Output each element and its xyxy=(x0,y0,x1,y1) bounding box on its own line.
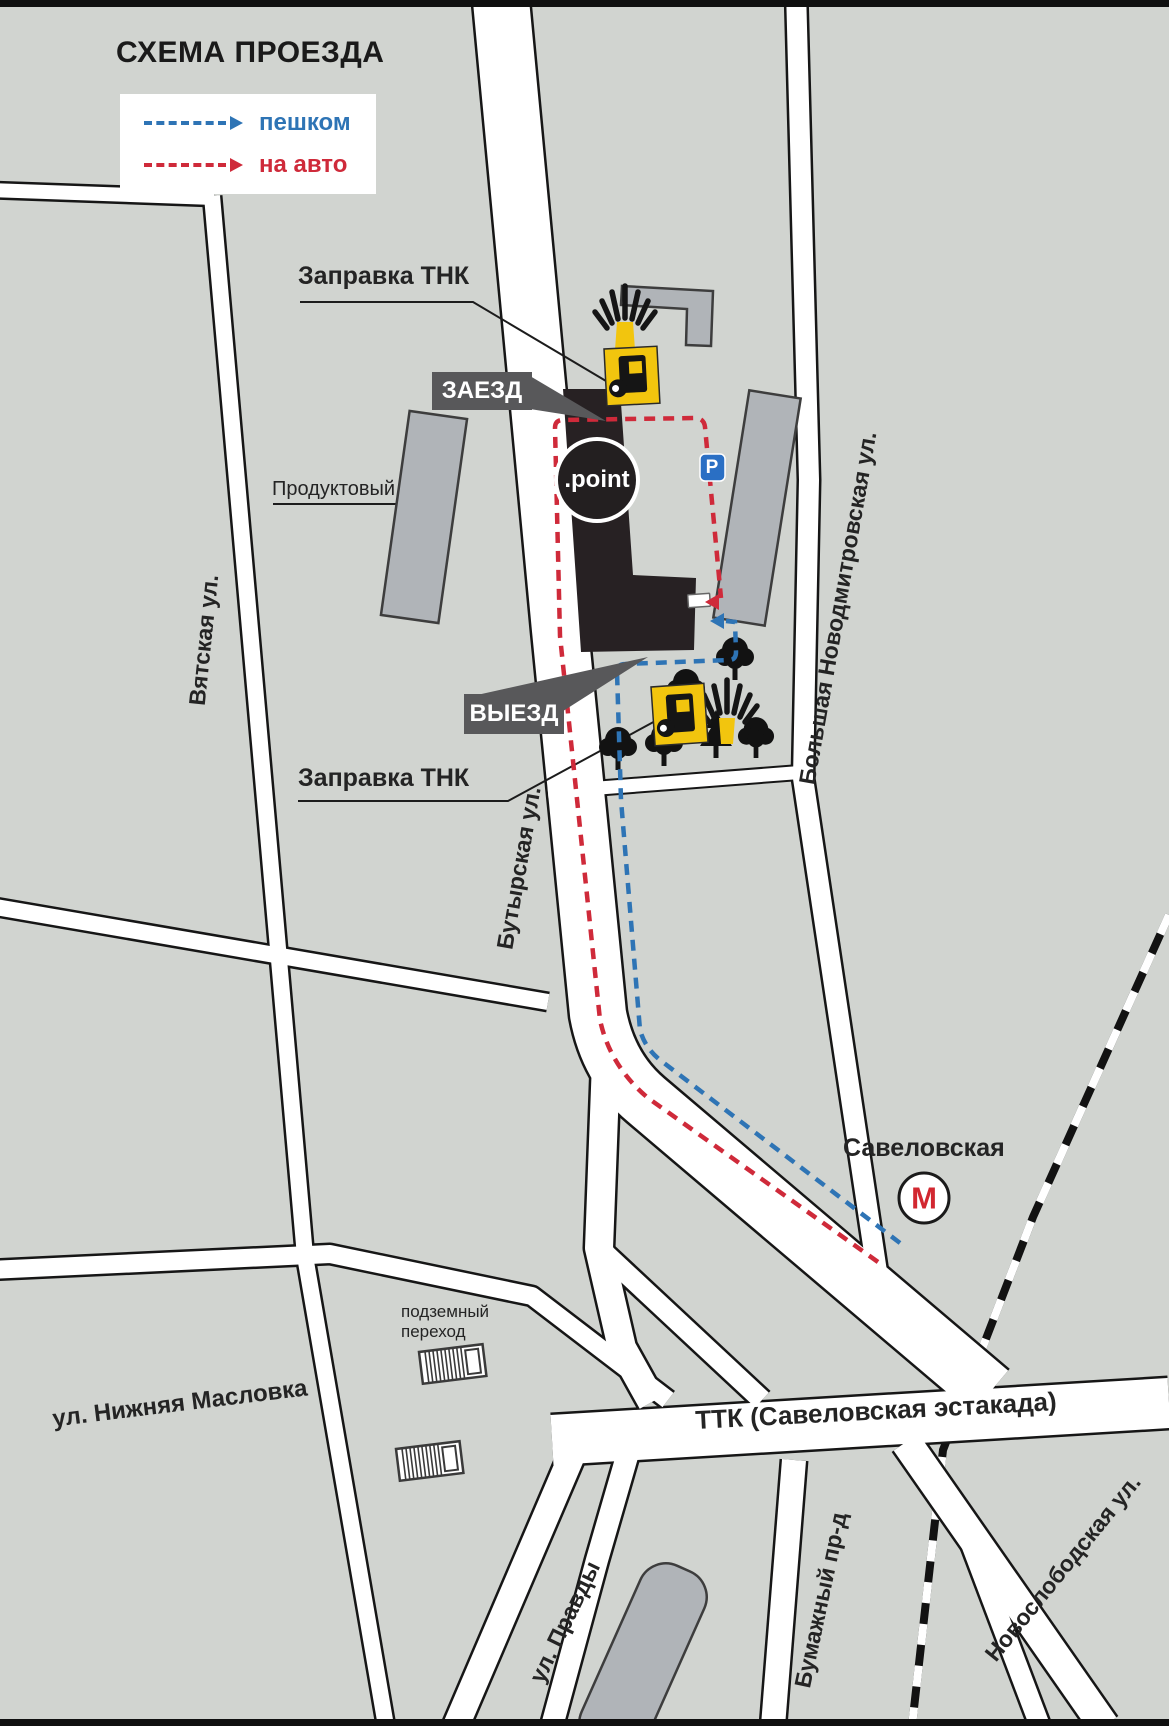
entry-badge: ЗАЕЗД xyxy=(432,372,532,410)
page-title: СХЕМА ПРОЕЗДА xyxy=(116,36,384,70)
underpass-stairs-icon xyxy=(396,1441,463,1481)
car-dash-icon xyxy=(144,163,226,167)
car-arrow-icon xyxy=(230,158,243,172)
grocery-building xyxy=(381,411,467,623)
point-logo: .point xyxy=(564,466,629,494)
walk-dash-icon xyxy=(144,121,226,125)
grocery-label: Продуктовый xyxy=(272,478,395,501)
underpass-label: подземный переход xyxy=(401,1302,513,1341)
exit-badge: ВЫЕЗД xyxy=(464,694,564,734)
long-building xyxy=(713,390,800,625)
parking-letter: P xyxy=(706,457,719,479)
legend-walk-label: пешком xyxy=(259,109,351,137)
legend-row-car: на авто xyxy=(144,151,376,179)
fuel-pump-icon xyxy=(651,683,708,746)
fuel-pump-icon xyxy=(604,346,660,406)
metro-station-label: Савеловская xyxy=(843,1134,1005,1163)
legend-box: пешком на авто xyxy=(120,94,376,194)
map-frame-top xyxy=(0,0,1169,7)
map-canvas: СХЕМА ПРОЕЗДА пешком на авто Заправка ТН… xyxy=(0,0,1169,1726)
gas-station-top-label: Заправка ТНК xyxy=(298,262,469,291)
entrance-door xyxy=(688,593,711,608)
legend-row-walk: пешком xyxy=(144,109,376,137)
gas-station-bottom-label: Заправка ТНК xyxy=(298,764,469,793)
walk-arrow-icon xyxy=(230,116,243,130)
metro-letter: М xyxy=(911,1180,937,1216)
map-frame-bottom xyxy=(0,1719,1169,1726)
underpass-stairs-icon xyxy=(419,1344,486,1384)
legend-car-label: на авто xyxy=(259,151,347,179)
map-graphics xyxy=(0,0,1169,1726)
